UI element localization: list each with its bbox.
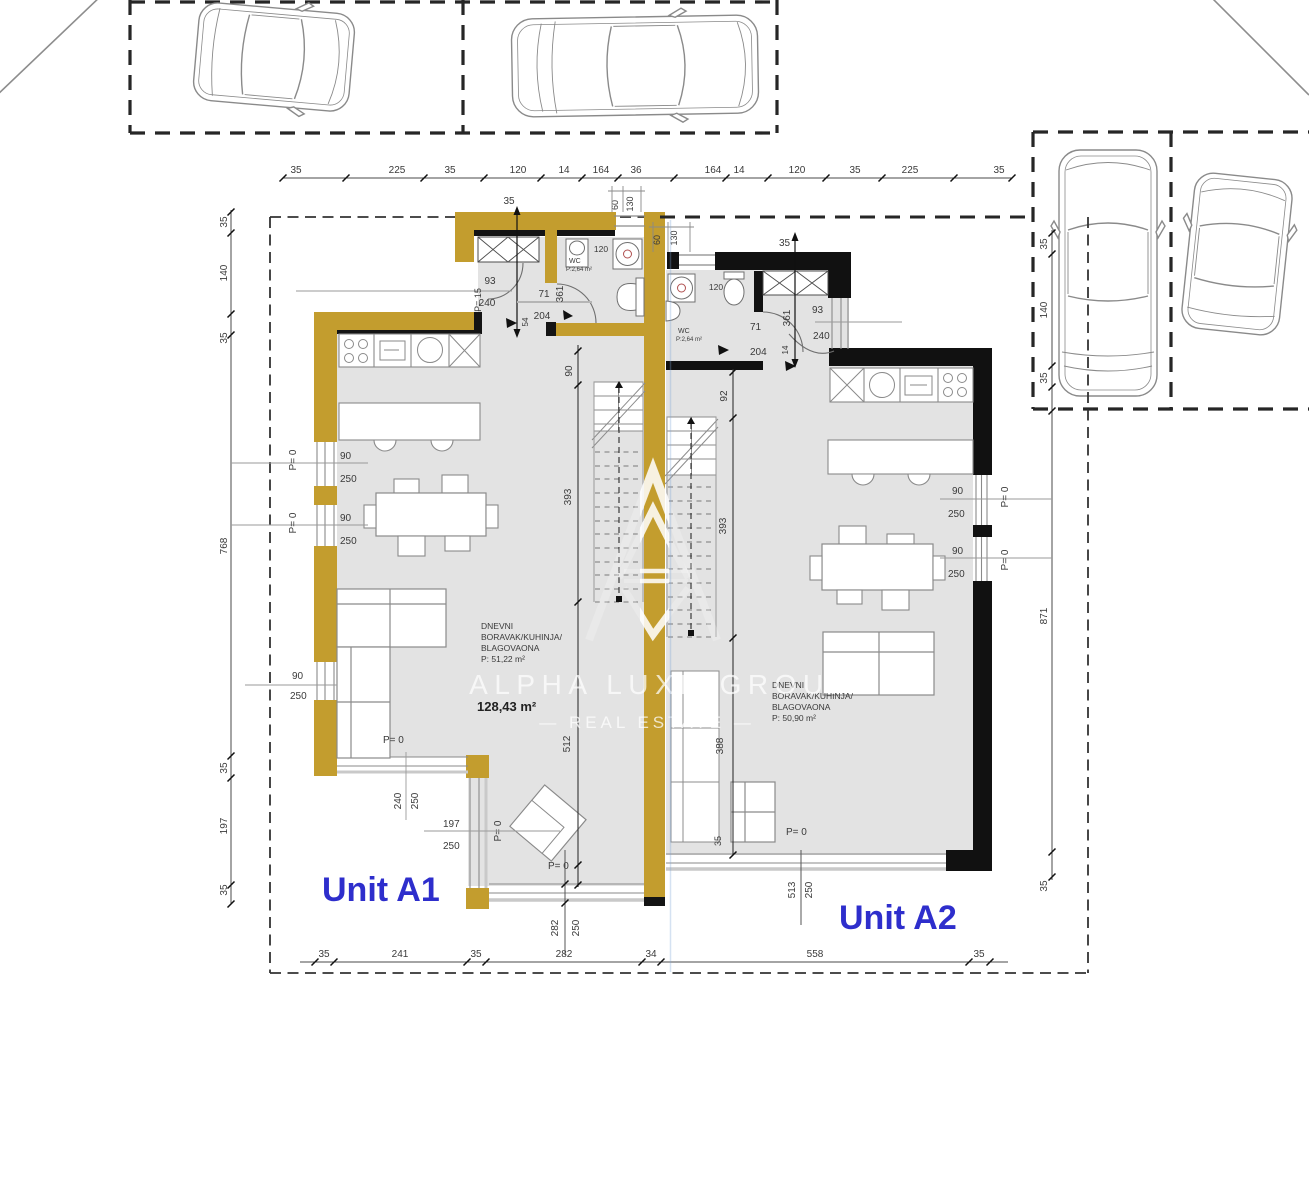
svg-text:Unit A1: Unit A1 xyxy=(322,871,440,909)
svg-text:35: 35 xyxy=(219,332,230,344)
svg-text:393: 393 xyxy=(563,488,574,505)
svg-text:120: 120 xyxy=(510,165,527,176)
svg-text:P= 0: P= 0 xyxy=(288,512,299,533)
svg-text:35: 35 xyxy=(973,949,985,960)
svg-text:71: 71 xyxy=(538,289,550,300)
svg-text:93: 93 xyxy=(812,305,824,316)
svg-text:513: 513 xyxy=(787,881,798,898)
svg-text:120: 120 xyxy=(594,244,608,254)
svg-text:35: 35 xyxy=(219,216,230,228)
svg-text:250: 250 xyxy=(571,919,582,936)
svg-text:128,43 m²: 128,43 m² xyxy=(477,699,537,714)
svg-text:250: 250 xyxy=(443,841,460,852)
svg-text:WC: WC xyxy=(569,258,581,265)
svg-text:36: 36 xyxy=(630,165,642,176)
svg-text:250: 250 xyxy=(804,881,815,898)
svg-text:35: 35 xyxy=(470,949,482,960)
svg-text:558: 558 xyxy=(807,949,824,960)
svg-text:P= 0: P= 0 xyxy=(548,861,569,872)
svg-text:P:2,64 m²: P:2,64 m² xyxy=(566,267,592,273)
svg-text:130: 130 xyxy=(625,196,635,211)
svg-text:250: 250 xyxy=(290,691,307,702)
svg-text:361: 361 xyxy=(555,285,566,302)
svg-text:35: 35 xyxy=(1039,372,1050,384)
svg-text:90: 90 xyxy=(340,513,352,524)
svg-text:60: 60 xyxy=(610,200,620,210)
svg-text:90: 90 xyxy=(292,671,304,682)
svg-text:P= 0: P= 0 xyxy=(383,735,404,746)
svg-text:35: 35 xyxy=(1039,880,1050,892)
svg-text:35: 35 xyxy=(444,165,456,176)
svg-text:BLAGOVAONA: BLAGOVAONA xyxy=(772,702,831,712)
svg-text:140: 140 xyxy=(219,264,230,281)
svg-text:P: 50,90 m²: P: 50,90 m² xyxy=(772,713,816,723)
svg-text:393: 393 xyxy=(718,517,729,534)
svg-text:35: 35 xyxy=(713,836,723,846)
svg-text:14: 14 xyxy=(733,165,745,176)
svg-text:282: 282 xyxy=(550,919,561,936)
svg-text:250: 250 xyxy=(948,509,965,520)
svg-text:282: 282 xyxy=(556,949,573,960)
svg-text:512: 512 xyxy=(562,735,573,752)
svg-text:250: 250 xyxy=(948,569,965,580)
svg-text:WC: WC xyxy=(678,328,690,335)
svg-text:35: 35 xyxy=(779,238,791,249)
svg-text:35: 35 xyxy=(290,165,302,176)
svg-text:93: 93 xyxy=(484,276,496,287)
svg-text:P: 51,22 m²: P: 51,22 m² xyxy=(481,654,525,664)
svg-text:140: 140 xyxy=(1039,301,1050,318)
svg-text:35: 35 xyxy=(849,165,861,176)
svg-text:P:2,64 m²: P:2,64 m² xyxy=(676,337,702,343)
svg-text:240: 240 xyxy=(393,792,404,809)
svg-text:14: 14 xyxy=(781,345,790,354)
svg-text:120: 120 xyxy=(709,282,723,292)
svg-text:90: 90 xyxy=(340,451,352,462)
svg-text:60: 60 xyxy=(652,235,662,245)
svg-text:768: 768 xyxy=(219,537,230,554)
svg-text:92: 92 xyxy=(719,390,730,402)
svg-text:250: 250 xyxy=(410,792,421,809)
svg-text:90: 90 xyxy=(952,546,964,557)
svg-text:35: 35 xyxy=(318,949,330,960)
svg-text:90: 90 xyxy=(952,486,964,497)
svg-text:BLAGOVAONA: BLAGOVAONA xyxy=(481,643,540,653)
svg-text:241: 241 xyxy=(392,949,409,960)
svg-text:197: 197 xyxy=(443,819,460,830)
svg-text:197: 197 xyxy=(219,817,230,834)
svg-text:35: 35 xyxy=(1039,238,1050,250)
svg-text:DNEVNI: DNEVNI xyxy=(481,621,513,631)
svg-text:225: 225 xyxy=(902,165,919,176)
svg-text:14: 14 xyxy=(558,165,570,176)
svg-text:120: 120 xyxy=(789,165,806,176)
svg-text:35: 35 xyxy=(219,884,230,896)
svg-text:— REAL ESTATE —: — REAL ESTATE — xyxy=(539,713,755,732)
svg-text:P= 0: P= 0 xyxy=(1000,486,1011,507)
svg-text:34: 34 xyxy=(645,949,657,960)
svg-text:90: 90 xyxy=(564,365,575,377)
svg-text:Unit A2: Unit A2 xyxy=(839,899,957,937)
svg-text:871: 871 xyxy=(1039,607,1050,624)
svg-text:388: 388 xyxy=(715,737,726,754)
svg-text:35: 35 xyxy=(503,196,515,207)
svg-text:204: 204 xyxy=(534,311,551,322)
svg-text:P= 15: P= 15 xyxy=(473,288,483,312)
svg-text:P= 0: P= 0 xyxy=(786,827,807,838)
svg-text:P= 0: P= 0 xyxy=(1000,549,1011,570)
svg-text:54: 54 xyxy=(521,317,530,326)
svg-text:71: 71 xyxy=(750,322,762,333)
svg-text:35: 35 xyxy=(993,165,1005,176)
svg-text:361: 361 xyxy=(782,309,793,326)
svg-text:240: 240 xyxy=(813,331,830,342)
svg-text:225: 225 xyxy=(389,165,406,176)
svg-text:164: 164 xyxy=(593,165,610,176)
svg-text:35: 35 xyxy=(219,762,230,774)
svg-text:P= 0: P= 0 xyxy=(288,449,299,470)
svg-text:204: 204 xyxy=(750,347,767,358)
svg-text:BORAVAK/KUHINJA/: BORAVAK/KUHINJA/ xyxy=(481,632,563,642)
svg-text:250: 250 xyxy=(340,536,357,547)
svg-text:164: 164 xyxy=(705,165,722,176)
svg-text:ALPHA LUXE GROUP: ALPHA LUXE GROUP xyxy=(469,669,855,700)
svg-text:250: 250 xyxy=(340,474,357,485)
